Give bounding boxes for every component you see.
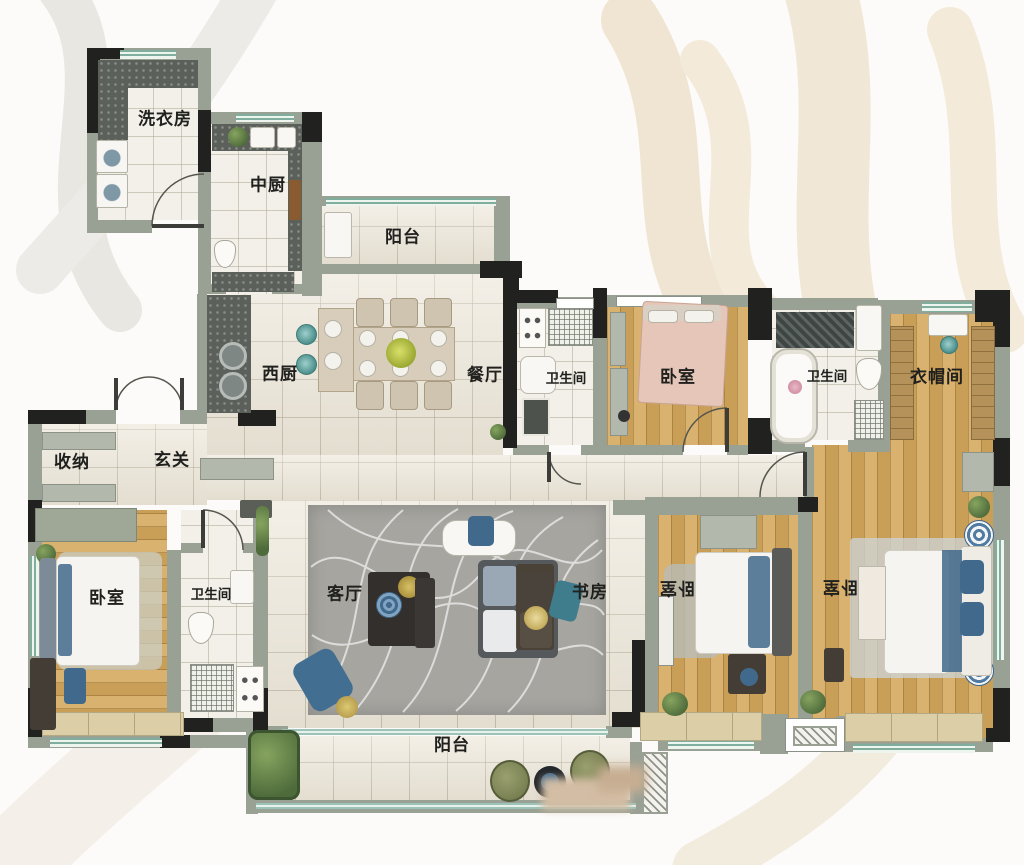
structural-wall bbox=[28, 410, 86, 424]
structural-wall bbox=[160, 735, 190, 748]
window bbox=[120, 50, 176, 59]
sofa-cushion bbox=[483, 566, 517, 606]
laundry-counter bbox=[98, 60, 198, 88]
structural-wall bbox=[612, 712, 640, 727]
wall bbox=[593, 338, 607, 455]
structural-wall bbox=[593, 288, 607, 338]
pillow bbox=[748, 556, 770, 648]
bed-runner bbox=[942, 550, 962, 672]
dresser bbox=[30, 658, 56, 730]
bar-stool bbox=[296, 324, 317, 345]
structural-wall bbox=[986, 728, 1010, 742]
structural-wall bbox=[632, 640, 645, 713]
vanity bbox=[856, 305, 882, 351]
room-label-bedroom-west: 卧室 bbox=[89, 584, 125, 609]
stool bbox=[824, 648, 844, 682]
balcony-cabinet bbox=[324, 212, 352, 258]
room-label-bath-west: 卫生间 bbox=[191, 583, 232, 603]
window bbox=[236, 114, 294, 122]
structural-wall bbox=[505, 290, 558, 303]
bed-headboard bbox=[772, 548, 792, 656]
balcony-chair bbox=[490, 760, 530, 802]
structural-wall bbox=[198, 110, 211, 172]
island-sink bbox=[219, 342, 247, 370]
wall bbox=[513, 445, 549, 455]
wall bbox=[760, 714, 788, 754]
bench bbox=[64, 668, 86, 704]
desk-chair bbox=[524, 606, 548, 630]
window bbox=[30, 556, 39, 656]
room-label-dining: 餐厅 bbox=[467, 361, 503, 386]
floor-plan: 洗衣房 中厨 阳台 西厨 餐厅 收纳 玄关 卫生间 卧室 卫生间 衣帽间 卧室 … bbox=[0, 0, 1024, 865]
room-label-cloakroom: 衣帽间 bbox=[910, 363, 964, 388]
plate bbox=[359, 330, 376, 347]
desk bbox=[610, 368, 628, 436]
pillow bbox=[648, 310, 678, 323]
plant bbox=[800, 690, 826, 714]
pouf bbox=[376, 592, 402, 618]
chair bbox=[740, 668, 758, 686]
door-leaf bbox=[804, 447, 814, 503]
structural-wall bbox=[798, 497, 818, 512]
wall bbox=[727, 445, 748, 455]
wall bbox=[180, 410, 207, 424]
washer-unit bbox=[854, 400, 884, 440]
plate bbox=[430, 330, 447, 347]
foyer-cabinet bbox=[200, 458, 274, 480]
dining-chair bbox=[356, 381, 384, 410]
room-label-storage: 收纳 bbox=[54, 448, 90, 473]
bed-headboard bbox=[40, 558, 56, 662]
window bbox=[922, 302, 972, 312]
wall bbox=[613, 500, 645, 515]
room-label-laundry: 洗衣房 bbox=[138, 105, 192, 130]
shower-area bbox=[776, 312, 854, 348]
bed-duvet bbox=[884, 550, 950, 674]
bathroom-sink bbox=[230, 570, 254, 604]
room-label-bath-master: 卫生间 bbox=[807, 365, 848, 385]
bay-window-sill bbox=[845, 713, 983, 742]
desk bbox=[658, 596, 674, 666]
plant bbox=[228, 127, 248, 147]
kitchen-counter bbox=[212, 272, 294, 292]
washer-unit bbox=[236, 666, 264, 712]
mop-basin bbox=[522, 398, 550, 436]
wall bbox=[167, 550, 181, 735]
pillow bbox=[960, 560, 984, 594]
shower-tray bbox=[548, 308, 593, 346]
structural-wall bbox=[503, 290, 517, 448]
bathtub bbox=[770, 348, 818, 444]
storage-shelf bbox=[42, 484, 116, 502]
room-label-chinese-kitchen: 中厨 bbox=[250, 171, 286, 196]
wardrobe bbox=[35, 508, 137, 542]
dining-chair bbox=[390, 381, 418, 410]
washing-machine bbox=[96, 174, 128, 208]
sofa-cushion bbox=[483, 610, 517, 652]
pillow bbox=[58, 564, 72, 656]
wall bbox=[645, 515, 658, 740]
window bbox=[853, 744, 975, 753]
shower-tray bbox=[190, 664, 234, 712]
window bbox=[326, 198, 496, 206]
dining-chair bbox=[424, 381, 452, 410]
room-label-foyer: 玄关 bbox=[154, 446, 190, 471]
bowl bbox=[324, 320, 342, 338]
chair bbox=[618, 410, 630, 422]
cabinet bbox=[962, 452, 994, 492]
plant bbox=[490, 424, 506, 440]
wall bbox=[318, 264, 482, 274]
bed-bench bbox=[858, 566, 886, 640]
wall bbox=[645, 497, 798, 515]
wall bbox=[581, 445, 607, 455]
plant bbox=[968, 496, 990, 518]
wall bbox=[181, 543, 203, 553]
washing-machine bbox=[96, 140, 128, 173]
wardrobe bbox=[971, 326, 995, 440]
kitchen-sink bbox=[277, 127, 296, 148]
oven bbox=[289, 180, 301, 220]
pillow bbox=[684, 310, 714, 323]
centerpiece-plant bbox=[386, 338, 416, 368]
room-label-living: 客厅 bbox=[327, 580, 363, 605]
plant bbox=[662, 692, 688, 716]
pillow bbox=[960, 602, 984, 636]
floor-hallway bbox=[207, 455, 813, 500]
wall bbox=[197, 294, 207, 422]
blurred-watermark bbox=[598, 766, 646, 792]
bar-stool bbox=[296, 354, 317, 375]
dining-chair bbox=[356, 298, 384, 327]
structural-wall bbox=[748, 288, 772, 340]
room-label-bath-center: 卫生间 bbox=[546, 367, 587, 387]
wall bbox=[606, 726, 632, 738]
side-table bbox=[336, 696, 358, 718]
plate bbox=[430, 360, 447, 377]
wardrobe bbox=[700, 515, 757, 549]
throw-blanket bbox=[468, 516, 494, 546]
cabinet bbox=[415, 578, 435, 648]
dining-chair bbox=[424, 298, 452, 327]
bay-window-sill bbox=[42, 712, 184, 736]
island-sink bbox=[219, 372, 247, 400]
window bbox=[995, 540, 1004, 660]
bay-window-sill bbox=[640, 712, 762, 741]
hatched-panel bbox=[793, 726, 837, 746]
washer-unit bbox=[519, 308, 546, 348]
room-label-study: 书房 bbox=[572, 578, 608, 603]
vanity bbox=[928, 314, 968, 336]
wall bbox=[494, 196, 510, 266]
room-label-north-balcony: 阳台 bbox=[385, 223, 421, 248]
wardrobe bbox=[610, 312, 626, 366]
kitchen-sink bbox=[250, 127, 275, 148]
wall bbox=[243, 543, 253, 553]
wall bbox=[848, 440, 878, 452]
room-label-bedroom-master: 卧室 bbox=[822, 577, 858, 602]
structural-wall bbox=[302, 112, 322, 142]
structural-wall bbox=[748, 418, 772, 454]
wall bbox=[993, 347, 1010, 438]
plant-niche bbox=[256, 506, 269, 556]
window bbox=[668, 740, 754, 749]
vanity-stool bbox=[940, 336, 958, 354]
structural-wall bbox=[993, 438, 1010, 486]
laundry-counter bbox=[98, 88, 128, 140]
bowl bbox=[324, 352, 342, 370]
structural-wall bbox=[993, 290, 1010, 347]
structural-wall bbox=[181, 718, 213, 732]
wall bbox=[607, 445, 683, 455]
window bbox=[50, 738, 162, 747]
room-label-bedroom-south: 卧室 bbox=[659, 578, 695, 603]
room-label-south-balcony: 阳台 bbox=[434, 731, 470, 756]
room-label-bedroom-north: 卧室 bbox=[660, 363, 696, 388]
plate bbox=[359, 360, 376, 377]
planter bbox=[248, 730, 300, 800]
dining-chair bbox=[390, 298, 418, 327]
room-label-western-kitchen: 西厨 bbox=[262, 360, 298, 385]
wall bbox=[87, 220, 152, 233]
bath-flower bbox=[788, 380, 802, 394]
